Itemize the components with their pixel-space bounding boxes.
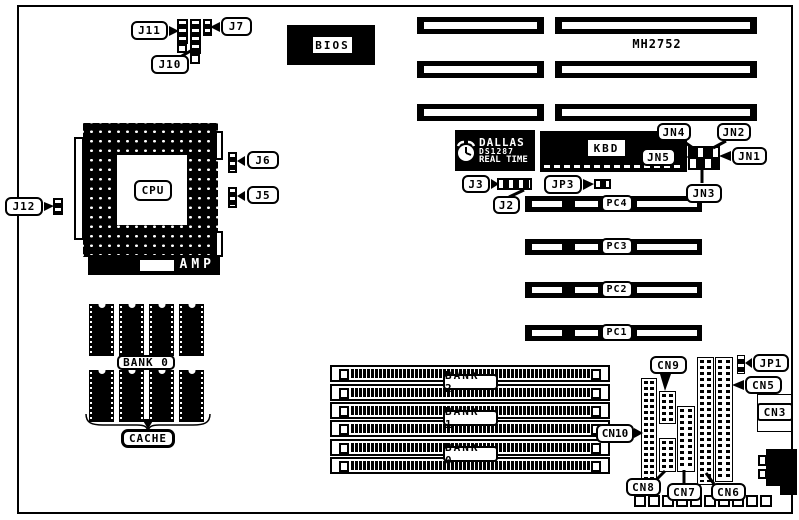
jn4-label: JN4 (657, 123, 691, 141)
pci-slot-pc1: PC1 (525, 325, 702, 341)
j12-label: J12 (5, 197, 43, 216)
cn8-label: CN8 (626, 478, 661, 496)
j7-jumper (203, 19, 212, 36)
cpu-label: CPU (134, 180, 172, 201)
rtc-chip-text: DALLAS DS1287 REAL TIME (479, 137, 528, 165)
isa-slot (555, 61, 757, 78)
cn5-label: CN5 (745, 376, 782, 394)
pci-slot-pc2: PC2 (525, 282, 702, 298)
isa-slot (417, 61, 544, 78)
j3-jumper (497, 178, 532, 190)
pc2-label: PC2 (601, 281, 633, 298)
cache-chip (179, 370, 204, 422)
j11-jumper-cap (177, 44, 187, 53)
cache-label: CACHE (121, 429, 175, 448)
bios-chip-label: BIOS (313, 37, 352, 53)
cpu-socket-base: AMP (88, 255, 220, 275)
cn6-label: CN6 (711, 483, 746, 501)
jp3-jumper (594, 179, 611, 189)
cn9-label: CN9 (650, 356, 687, 374)
jn3-label: JN3 (686, 184, 722, 203)
isa-slot (417, 17, 544, 34)
cache-chip (149, 370, 174, 422)
jp1-label: JP1 (753, 354, 789, 372)
cn3-label: CN3 (757, 403, 793, 421)
jp1-jumper (737, 355, 745, 374)
j11-label: J11 (131, 21, 168, 40)
board-model-text: MH2752 (622, 37, 692, 51)
cache-chip (89, 304, 114, 356)
simm-bank1-label: BANK 1 (443, 410, 498, 426)
j6-jumper (228, 152, 237, 173)
din-pin (758, 455, 767, 466)
cache-chip (89, 370, 114, 422)
isa-slot (555, 104, 757, 121)
j6-label: J6 (247, 151, 279, 169)
clock-icon (455, 137, 477, 165)
bios-chip: BIOS (287, 25, 375, 65)
jn-jumper-block (688, 146, 720, 170)
cpu-socket-cavity: CPU (117, 155, 187, 225)
cache-chip (179, 304, 204, 356)
j10-jumper-cap (190, 54, 200, 64)
j10-label: J10 (151, 55, 189, 74)
cn9-header (659, 391, 676, 424)
motherboard-diagram: J11 J10 J7 BIOS MH2752 DALLAS DS1287 REA… (0, 0, 799, 520)
pci-slot-pc3: PC3 (525, 239, 702, 255)
j12-jumper (53, 198, 63, 215)
j10-jumper (190, 19, 201, 54)
cache-bank-label: BANK 0 (117, 355, 175, 370)
j7-label: J7 (221, 17, 252, 36)
jn1-label: JN1 (732, 147, 767, 165)
pc3-label: PC3 (601, 238, 633, 255)
pci-slot-pc4: PC4 (525, 196, 702, 212)
cpu-socket: CPU (83, 123, 218, 257)
cn10-header (641, 378, 657, 486)
cpu-socket-base-window (140, 260, 174, 271)
j5-label: J5 (247, 186, 279, 204)
rtc-chip: DALLAS DS1287 REAL TIME (455, 130, 535, 171)
cpu-socket-tab (215, 131, 223, 160)
isa-slot (555, 17, 757, 34)
j5-jumper (228, 187, 237, 208)
cn6-header (697, 357, 714, 485)
cn5-header (715, 357, 733, 482)
cn7-header (677, 406, 695, 472)
cn10-label: CN10 (596, 424, 634, 443)
j3-label: J3 (462, 175, 490, 193)
pc4-label: PC4 (601, 195, 633, 212)
jn2-label: JN2 (717, 123, 751, 141)
cache-chip (119, 304, 144, 356)
isa-slot (417, 104, 544, 121)
cache-chip (119, 370, 144, 422)
jp3-label: JP3 (544, 175, 582, 194)
simm-bank2-label: BANK 2 (443, 374, 498, 390)
keyboard-din-connector-step (780, 485, 797, 495)
cpu-socket-lever (74, 137, 84, 240)
rtc-type: REAL TIME (479, 156, 528, 165)
keyboard-din-connector (766, 449, 797, 486)
cache-chip (149, 304, 174, 356)
cpu-socket-tab (215, 231, 223, 257)
edge-connector (634, 495, 772, 507)
din-pin (758, 469, 767, 479)
cn9-lower-header (659, 438, 676, 472)
kbd-chip-label: KBD (588, 140, 625, 156)
pc1-label: PC1 (601, 324, 633, 341)
j11-jumper (177, 19, 188, 44)
simm-bank0-label: BANK 0 (443, 446, 498, 462)
socket-brand-text: AMP (180, 257, 215, 272)
rtc-brand: DALLAS (479, 137, 528, 148)
jn5-label: JN5 (641, 148, 676, 166)
cn7-label: CN7 (667, 483, 702, 501)
j2-label: J2 (493, 196, 520, 214)
